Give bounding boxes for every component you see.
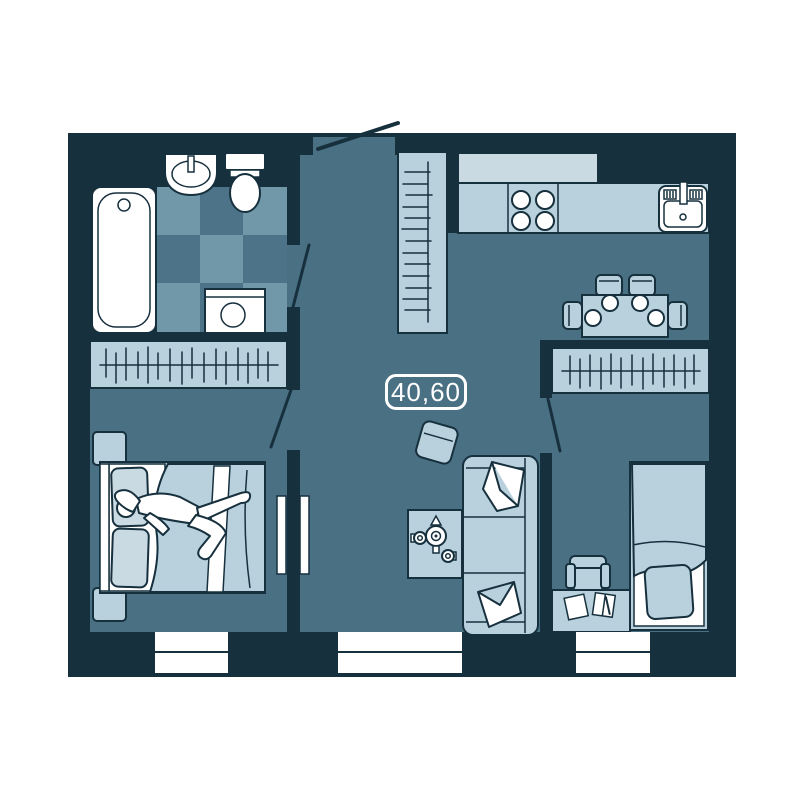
tile (157, 235, 200, 283)
hall-wardrobe (398, 152, 447, 333)
sofa-icon (463, 456, 538, 635)
dining-chair-icon (668, 302, 687, 329)
hallway-floor (300, 155, 398, 632)
bathtub-icon (92, 187, 156, 333)
teacup-icon (442, 550, 456, 562)
floorplan-stage: 40,60 (0, 0, 800, 800)
area-badge: 40,60 (385, 374, 467, 410)
plate-icon (602, 295, 618, 311)
paper-icon (564, 594, 588, 620)
single-bed-icon (630, 462, 708, 630)
plate-icon (585, 310, 601, 326)
plate-icon (648, 310, 664, 326)
window-icon (155, 632, 228, 673)
desk-icon (552, 590, 630, 632)
coffee-table-icon (408, 510, 462, 578)
wardrobe-left (90, 341, 287, 388)
tile (157, 283, 200, 332)
tile (200, 235, 243, 283)
washing-machine-icon (205, 289, 265, 333)
nightstand-icon (93, 432, 126, 465)
dining-chair-icon (563, 302, 582, 329)
dining-chair-icon (629, 275, 655, 296)
desk-chair-icon (566, 556, 610, 590)
bed-pillow-icon (644, 564, 694, 619)
wardrobe-right (552, 348, 709, 393)
window-icon (338, 632, 462, 673)
window-icon (576, 632, 650, 673)
dining-chair-icon (596, 275, 622, 296)
double-bed-icon (100, 462, 265, 593)
plate-icon (632, 295, 648, 311)
paper-icon (592, 593, 615, 618)
washbasin-icon (165, 154, 217, 195)
kitchen-sink-icon (659, 182, 707, 232)
bed-pillow-icon (111, 528, 149, 587)
kitchen-upper-cabinets-icon (458, 153, 598, 183)
headboard (100, 464, 109, 591)
area-label: 40,60 (391, 377, 461, 408)
teacup-icon (411, 532, 426, 544)
bathroom-door-opening (287, 245, 300, 307)
tile (243, 235, 287, 283)
blanket (632, 464, 706, 576)
